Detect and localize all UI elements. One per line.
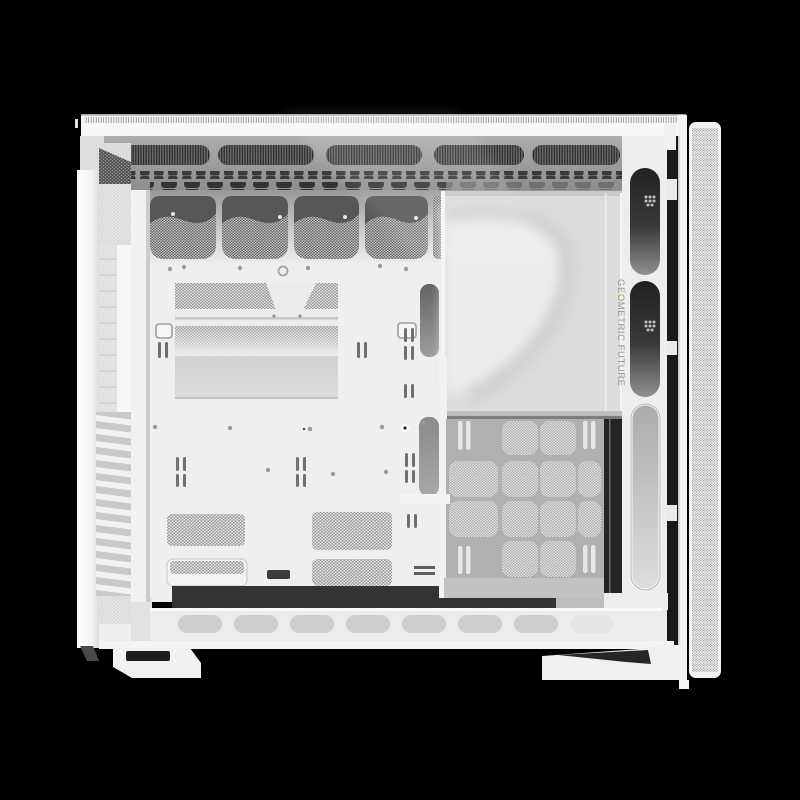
svg-text:GEOMETRIC FUTURE: GEOMETRIC FUTURE [615, 279, 626, 387]
